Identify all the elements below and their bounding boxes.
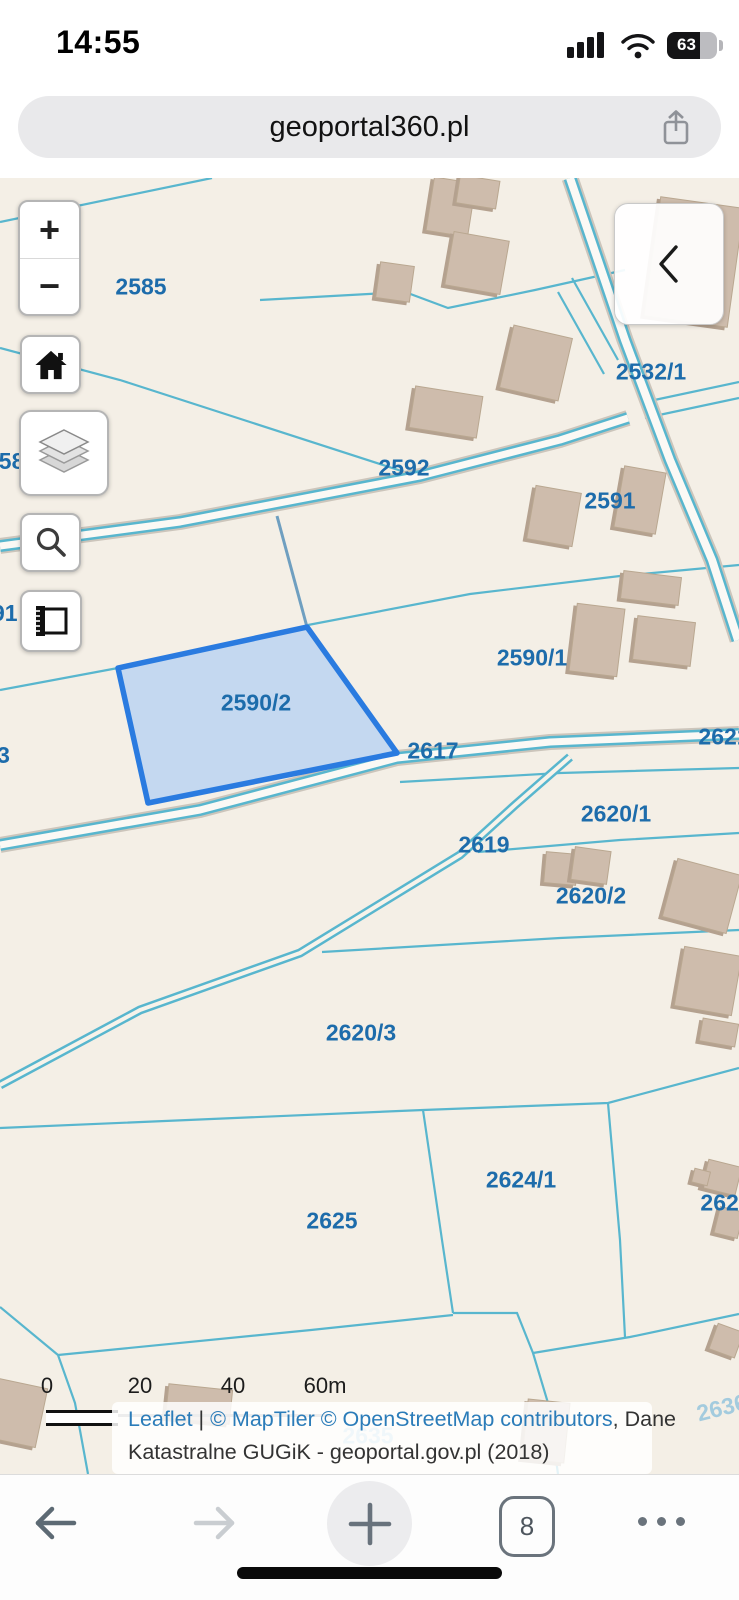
scale-tick: 0 (41, 1373, 53, 1399)
parcel-label: 2619 (458, 832, 509, 859)
zoom-control: + − (18, 200, 81, 316)
maptiler-link[interactable]: © MapTiler (210, 1407, 315, 1431)
layers-icon (36, 428, 92, 478)
parcel-label: 2585 (115, 274, 166, 301)
battery-icon: 63 (667, 32, 717, 59)
parcel-label-selected: 2590/2 (221, 690, 291, 717)
search-icon (34, 526, 68, 560)
wifi-icon (619, 30, 657, 60)
status-bar: 14:55 63 (0, 0, 739, 90)
parcel-label: 0/3 (0, 742, 10, 769)
parcel-label: 91 (0, 600, 18, 627)
parcel-label: 2621 (698, 724, 739, 751)
browser-address-bar-area: geoportal360.pl (0, 90, 739, 178)
home-indicator[interactable] (237, 1567, 502, 1579)
map-attribution: Leaflet | © MapTiler © OpenStreetMap con… (112, 1402, 652, 1474)
plus-icon (348, 1502, 392, 1546)
scale-bar (46, 1410, 118, 1426)
ruler-icon (33, 603, 69, 639)
zoom-out-button[interactable]: − (20, 259, 79, 315)
parcel-label: 2591 (584, 488, 635, 515)
parcel-label: 2620/3 (326, 1020, 396, 1047)
more-options-button[interactable] (638, 1517, 685, 1526)
search-button[interactable] (20, 513, 81, 572)
parcel-label: 2592 (378, 455, 429, 482)
attribution-line2: Katastralne GUGiK - geoportal.gov.pl (20… (128, 1440, 549, 1465)
clock: 14:55 (56, 24, 140, 61)
battery-percent: 63 (667, 32, 706, 59)
cellular-signal-icon (567, 30, 609, 60)
parcel-label: 2624 (700, 1190, 739, 1217)
back-arrow-icon (32, 1504, 80, 1542)
scale-tick: 20 (128, 1373, 152, 1399)
collapse-panel-button[interactable] (614, 203, 724, 325)
forward-arrow-icon (190, 1504, 238, 1542)
new-tab-button[interactable] (327, 1481, 412, 1566)
share-icon[interactable] (659, 109, 693, 152)
forward-button[interactable] (186, 1495, 242, 1551)
parcel-label: 2532/1 (616, 359, 686, 386)
address-bar[interactable]: geoportal360.pl (18, 96, 721, 158)
scale-tick: 60m (304, 1373, 347, 1399)
tabs-button[interactable]: 8 (499, 1496, 555, 1557)
leaflet-link[interactable]: Leaflet (128, 1407, 193, 1431)
parcel-label: 2625 (306, 1208, 357, 1235)
parcel-label: 2624/1 (486, 1167, 556, 1194)
home-icon (34, 349, 68, 381)
url-text[interactable]: geoportal360.pl (18, 96, 721, 158)
osm-link[interactable]: © OpenStreetMap contributors (315, 1407, 613, 1431)
measure-button[interactable] (20, 590, 82, 652)
parcel-label: 2620/1 (581, 801, 651, 828)
iphone-screen: 14:55 63 geoportal360.pl (0, 0, 739, 1600)
home-button[interactable] (20, 335, 81, 394)
chevron-left-icon (656, 243, 682, 285)
zoom-in-button[interactable]: + (20, 202, 79, 258)
back-button[interactable] (28, 1495, 84, 1551)
parcel-label: 2620/2 (556, 883, 626, 910)
browser-toolbar: 8 (0, 1474, 739, 1600)
tab-count: 8 (520, 1511, 534, 1542)
scale-tick: 40 (221, 1373, 245, 1399)
parcel-label: 2617 (407, 738, 458, 765)
layers-button[interactable] (19, 410, 109, 496)
parcel-label: 2590/1 (497, 645, 567, 672)
map-canvas[interactable]: 2585 2532/1 2592 2591 2590/1 2590/2 2617… (0, 178, 739, 1474)
